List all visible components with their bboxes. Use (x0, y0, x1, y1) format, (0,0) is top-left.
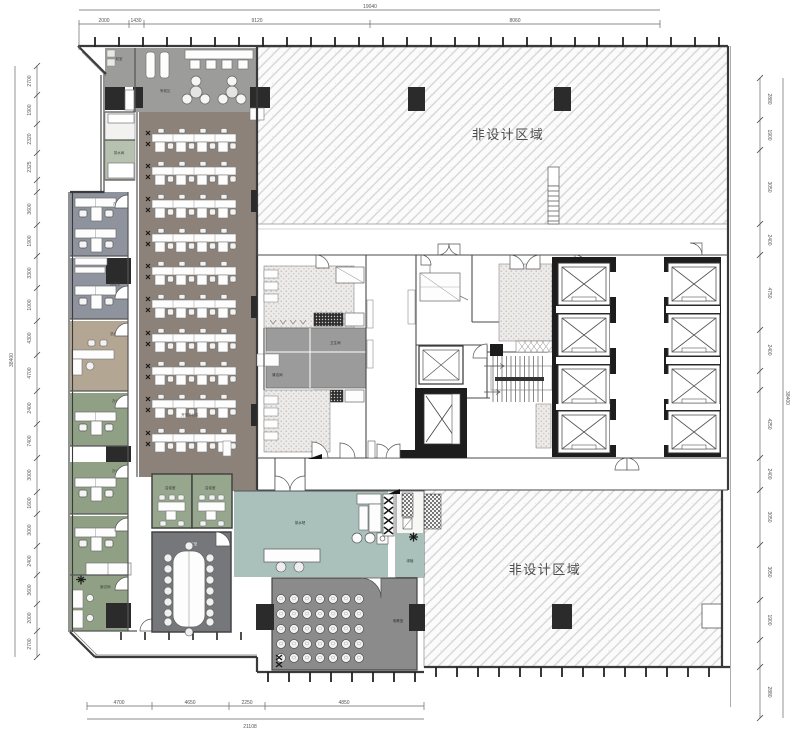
svg-text:2400: 2400 (766, 468, 772, 479)
svg-text:1900: 1900 (766, 614, 772, 625)
svg-text:洽谈室: 洽谈室 (205, 485, 216, 490)
svg-text:3050: 3050 (766, 566, 772, 577)
svg-text:2880: 2880 (766, 686, 772, 697)
svg-text:经理室: 经理室 (110, 281, 121, 286)
svg-text:清洁间: 清洁间 (272, 372, 283, 377)
svg-text:2880: 2880 (766, 93, 772, 104)
svg-text:非设计区域: 非设计区域 (509, 562, 582, 577)
svg-text:19040: 19040 (363, 4, 377, 10)
svg-text:开放办公区: 开放办公区 (181, 412, 199, 417)
svg-text:2250: 2250 (241, 700, 252, 706)
svg-text:4700: 4700 (113, 700, 124, 706)
svg-text:9120: 9120 (251, 18, 262, 24)
svg-text:7400: 7400 (27, 435, 33, 446)
svg-text:38400: 38400 (9, 353, 15, 367)
svg-text:4250: 4250 (766, 418, 772, 429)
svg-text:茶水吧: 茶水吧 (295, 520, 306, 525)
svg-text:8060: 8060 (509, 18, 520, 24)
svg-text:2000: 2000 (98, 18, 109, 24)
svg-text:绿植: 绿植 (407, 558, 415, 563)
svg-text:4700: 4700 (27, 367, 33, 378)
svg-text:4850: 4850 (338, 700, 349, 706)
svg-text:4300: 4300 (27, 332, 33, 343)
svg-text:1600: 1600 (27, 497, 33, 508)
svg-text:2400: 2400 (766, 344, 772, 355)
svg-text:38400: 38400 (784, 391, 790, 405)
svg-text:21108: 21108 (243, 724, 257, 730)
svg-text:2325: 2325 (27, 161, 33, 172)
svg-text:4750: 4750 (766, 287, 772, 298)
svg-text:3300: 3300 (27, 267, 33, 278)
svg-text:2700: 2700 (27, 638, 33, 649)
svg-text:面试间: 面试间 (100, 584, 111, 589)
svg-text:3050: 3050 (766, 181, 772, 192)
svg-text:前室: 前室 (116, 56, 123, 61)
svg-text:1430: 1430 (130, 18, 141, 24)
svg-text:3600: 3600 (27, 584, 33, 595)
svg-text:2400: 2400 (27, 555, 33, 566)
svg-text:1000: 1000 (27, 299, 33, 310)
svg-text:3050: 3050 (766, 511, 772, 522)
svg-text:2700: 2700 (27, 75, 33, 86)
svg-text:3000: 3000 (27, 524, 33, 535)
svg-text:3600: 3600 (27, 203, 33, 214)
svg-text:茶水间: 茶水间 (114, 150, 125, 155)
svg-text:2320: 2320 (27, 133, 33, 144)
svg-text:1900: 1900 (27, 104, 33, 115)
svg-text:2400: 2400 (766, 234, 772, 245)
svg-text:3000: 3000 (27, 469, 33, 480)
svg-text:卫生间: 卫生间 (330, 340, 341, 345)
svg-text:2400: 2400 (27, 402, 33, 413)
svg-text:洽谈室: 洽谈室 (165, 485, 176, 490)
svg-text:4650: 4650 (184, 700, 195, 706)
svg-text:2000: 2000 (27, 612, 33, 623)
svg-text:等候区: 等候区 (160, 88, 171, 93)
svg-text:1900: 1900 (766, 129, 772, 140)
svg-text:1900: 1900 (27, 235, 33, 246)
svg-text:非设计区域: 非设计区域 (472, 127, 545, 142)
svg-text:电教室: 电教室 (393, 618, 404, 623)
